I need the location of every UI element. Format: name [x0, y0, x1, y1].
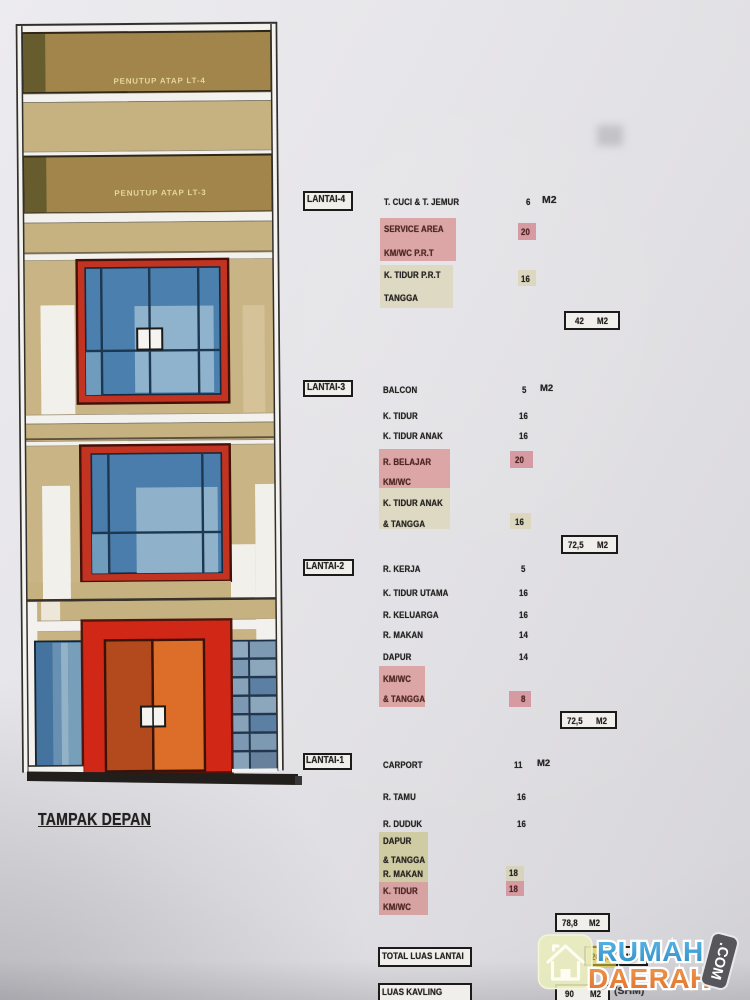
svg-text:DAERAH: DAERAH [588, 963, 711, 994]
